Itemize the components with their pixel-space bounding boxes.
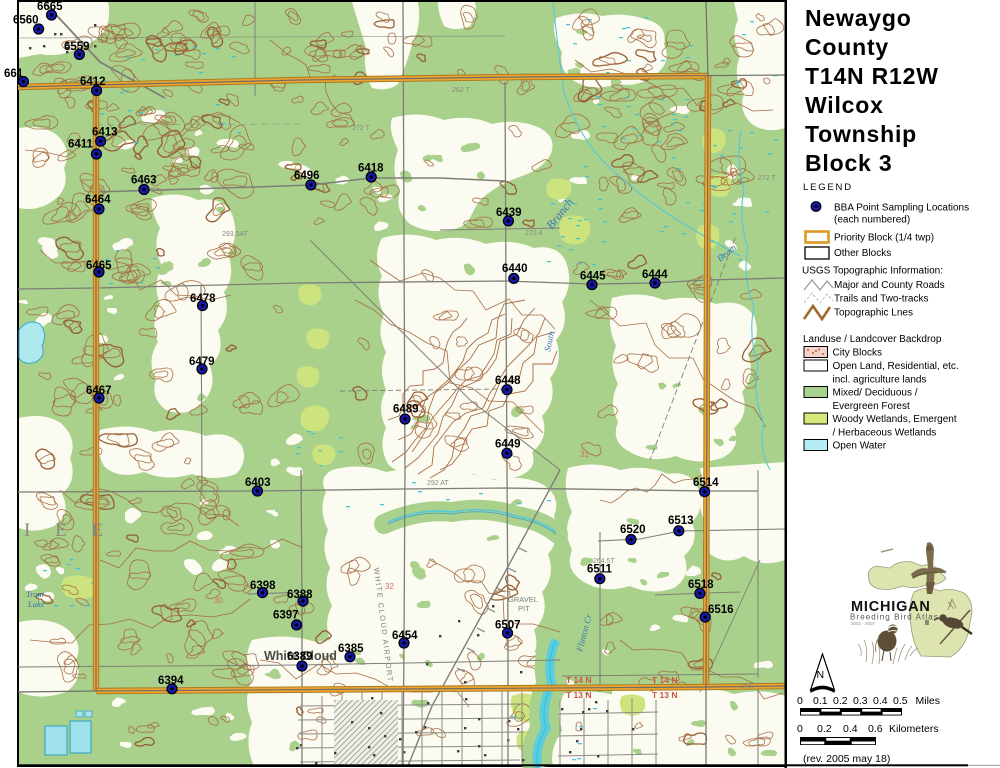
svg-text:6520: 6520	[620, 524, 646, 536]
svg-text:32: 32	[385, 582, 394, 591]
svg-text:6507: 6507	[495, 620, 521, 632]
svg-text:243.7: 243.7	[740, 683, 758, 690]
svg-text:6560: 6560	[13, 15, 39, 27]
svg-text:6389: 6389	[287, 651, 313, 663]
svg-text:292 AT: 292 AT	[427, 480, 449, 487]
svg-text:6398: 6398	[250, 580, 276, 592]
svg-text:PIT: PIT	[518, 604, 530, 613]
svg-text:6412: 6412	[80, 76, 106, 88]
svg-text:6440: 6440	[502, 263, 528, 275]
svg-text:262 T: 262 T	[452, 87, 470, 94]
svg-text:31: 31	[580, 450, 589, 459]
svg-text:6467: 6467	[86, 385, 112, 397]
svg-text:6454: 6454	[392, 630, 418, 642]
svg-text:GRAVEL: GRAVEL	[508, 595, 538, 604]
svg-text:6403: 6403	[245, 477, 271, 489]
svg-text:6418: 6418	[358, 163, 384, 175]
svg-text:6463: 6463	[131, 175, 157, 187]
svg-text:6448: 6448	[495, 375, 521, 387]
svg-text:6665: 6665	[37, 1, 63, 13]
svg-text:T 13 N: T 13 N	[566, 690, 592, 700]
svg-text:6413: 6413	[92, 127, 118, 139]
svg-text:6516: 6516	[708, 604, 734, 616]
svg-text:6559: 6559	[64, 41, 90, 53]
svg-text:293.5AT: 293.5AT	[222, 231, 249, 238]
svg-text:6449: 6449	[495, 439, 521, 451]
svg-text:6411: 6411	[68, 139, 94, 151]
svg-text:6465: 6465	[86, 260, 112, 272]
svg-text:6479: 6479	[189, 356, 215, 368]
svg-text:6518: 6518	[688, 579, 714, 591]
svg-text:6478: 6478	[190, 293, 216, 305]
svg-text:6511: 6511	[587, 564, 613, 576]
svg-text:6514: 6514	[693, 477, 719, 489]
svg-text:Lake: Lake	[27, 599, 45, 609]
svg-text:6388: 6388	[287, 589, 313, 601]
svg-text:6445: 6445	[580, 271, 606, 283]
svg-text:6444: 6444	[642, 269, 668, 281]
svg-text:272 T: 272 T	[352, 125, 370, 132]
svg-text:30: 30	[214, 596, 223, 605]
svg-text:6489: 6489	[393, 404, 419, 416]
svg-text:Trout: Trout	[26, 589, 45, 599]
svg-text:T 14 N: T 14 N	[566, 675, 592, 685]
svg-text:6394: 6394	[158, 675, 184, 687]
svg-text:6496: 6496	[294, 170, 320, 182]
svg-text:I E E: I E E	[24, 520, 113, 541]
svg-text:272.4: 272.4	[525, 230, 543, 237]
svg-text:6464: 6464	[85, 194, 111, 206]
svg-text:6385: 6385	[338, 643, 364, 655]
svg-text:6397: 6397	[273, 610, 299, 622]
svg-text:T 14 N: T 14 N	[652, 675, 678, 685]
svg-text:661: 661	[4, 68, 24, 80]
svg-text:272 T: 272 T	[758, 175, 776, 182]
svg-text:6439: 6439	[496, 207, 522, 219]
svg-text:T 13 N: T 13 N	[652, 690, 678, 700]
svg-text:6513: 6513	[668, 515, 694, 527]
